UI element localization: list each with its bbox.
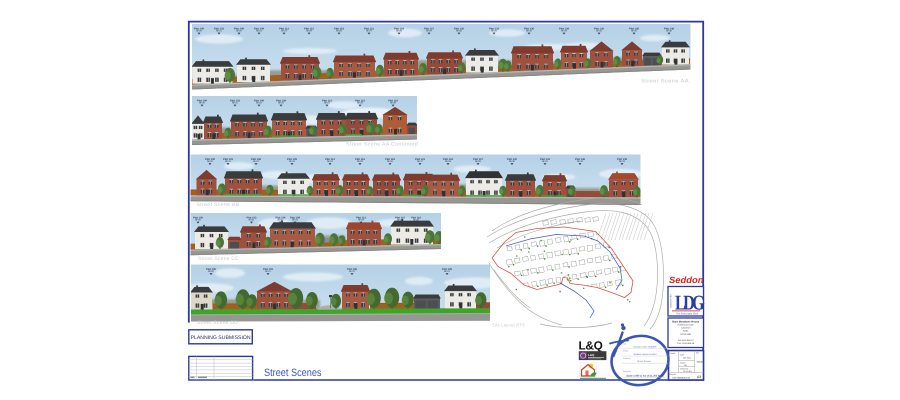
svg-text:BH21: BH21 [225, 160, 231, 163]
svg-text:Seddon: Seddon [669, 275, 704, 285]
svg-text:Calverton: Calverton [681, 327, 691, 330]
svg-text:Site Layout NTS: Site Layout NTS [492, 323, 525, 328]
svg-text:LW: LW [684, 364, 687, 367]
svg-text:BH22: BH22 [278, 219, 284, 222]
svg-text:BH36: BH36 [666, 30, 672, 33]
svg-text:Scale 1:500 @ A3 10.11.301 S: Scale 1:500 @ A3 10.11.301 SS03 [626, 374, 664, 377]
svg-text:BH20: BH20 [196, 30, 202, 33]
svg-text:BH27: BH27 [417, 160, 423, 163]
svg-text:BH20: BH20 [207, 160, 213, 163]
svg-text:L&Q: L&Q [588, 353, 595, 357]
svg-text:BH20: BH20 [195, 219, 201, 222]
svg-text:BH21: BH21 [216, 30, 222, 33]
svg-text:BH26: BH26 [390, 102, 396, 105]
svg-text:Oct 2011: Oct 2011 [683, 357, 692, 360]
svg-text:BH30: BH30 [456, 30, 462, 33]
svg-text:Drawing: Drawing [623, 357, 630, 360]
svg-text:Hollinwood Lane: Hollinwood Lane [678, 324, 695, 327]
svg-text:Rev: Rev [696, 352, 699, 355]
svg-text:BH32: BH32 [577, 160, 583, 163]
svg-text:BH29: BH29 [426, 30, 432, 33]
svg-text:BH33: BH33 [561, 30, 567, 33]
svg-text:BH35: BH35 [631, 30, 637, 33]
svg-text:NG14 6NR: NG14 6NR [680, 333, 691, 336]
svg-text:Street Scenes: Street Scenes [637, 360, 652, 363]
svg-text:Notts: Notts [683, 330, 689, 333]
svg-text:Scale: Scale [670, 352, 676, 355]
svg-text:A3: A3 [697, 375, 701, 379]
svg-text:BH25: BH25 [397, 219, 403, 222]
svg-text:Revision: Revision [623, 370, 631, 373]
svg-text:BH30: BH30 [509, 160, 515, 163]
svg-text:Street Scene AA: Street Scene AA [641, 79, 689, 85]
svg-text:Street Scene AA Continued: Street Scene AA Continued [346, 142, 418, 148]
svg-text:BH21: BH21 [265, 270, 271, 273]
svg-text:The Associates Elect: The Associates Elect [676, 313, 699, 316]
svg-text:PLANNING SUBMISSION: PLANNING SUBMISSION [191, 335, 251, 341]
svg-text:Seddon Homes Limited: Seddon Homes Limited [634, 353, 658, 356]
svg-text:Seddon: Seddon [697, 361, 705, 364]
svg-text:10.11.301: 10.11.301 [683, 370, 693, 373]
svg-text:BH20: BH20 [199, 102, 205, 105]
svg-text:Oxclose Lane, Radcliffe: Oxclose Lane, Radcliffe [633, 345, 657, 348]
svg-text:Street Scenes: Street Scenes [264, 367, 322, 379]
svg-text:BH24: BH24 [358, 219, 364, 222]
svg-text:BH31: BH31 [542, 160, 548, 163]
svg-text:BH25: BH25 [357, 102, 363, 105]
svg-text:BH26: BH26 [336, 30, 342, 33]
svg-text:Client: Client [623, 350, 629, 353]
svg-text:BH22: BH22 [256, 102, 262, 105]
svg-text:BH25: BH25 [306, 30, 312, 33]
svg-text:OXI/TIB/BB/SS 03: OXI/TIB/BB/SS 03 [672, 376, 691, 379]
svg-text:BH20: BH20 [208, 270, 214, 273]
svg-text:Street Scene CC: Street Scene CC [198, 256, 239, 262]
svg-text:BH24: BH24 [281, 30, 287, 33]
svg-text:BH22: BH22 [253, 160, 259, 163]
svg-text:ASSOCIATES: ASSOCIATES [670, 294, 673, 308]
svg-text:BH23: BH23 [256, 30, 262, 33]
svg-text:BH28: BH28 [445, 160, 451, 163]
svg-text:Barn Meadows House: Barn Meadows House [672, 320, 700, 323]
svg-text:BH28: BH28 [396, 30, 402, 33]
svg-text:BH27: BH27 [366, 30, 372, 33]
svg-text:BH23: BH23 [292, 219, 298, 222]
svg-text:L&Q: L&Q [579, 338, 603, 352]
svg-text:BH25: BH25 [357, 160, 363, 163]
svg-text:Fax: 0115 965 58: Fax: 0115 965 58 [677, 342, 695, 345]
svg-text:BH24: BH24 [327, 160, 333, 163]
svg-text:BH21: BH21 [232, 102, 238, 105]
svg-text:BH23: BH23 [444, 270, 450, 273]
svg-text:BH33: BH33 [619, 160, 625, 163]
svg-text:BH21: BH21 [249, 219, 255, 222]
svg-text:BH22: BH22 [349, 270, 355, 273]
svg-text:BH34: BH34 [596, 30, 602, 33]
svg-text:BH23: BH23 [289, 160, 295, 163]
svg-text:BH22: BH22 [236, 30, 242, 33]
svg-text:BH32: BH32 [526, 30, 532, 33]
svg-text:Tel: 0115 965 57: Tel: 0115 965 57 [678, 339, 695, 342]
svg-text:BH23: BH23 [278, 102, 284, 105]
svg-text:Dwg No: Dwg No [670, 373, 677, 376]
svg-text:BH26: BH26 [387, 160, 393, 163]
svg-text:BH26: BH26 [413, 219, 419, 222]
svg-text:Street Scene DD: Street Scene DD [197, 320, 238, 326]
svg-text:BH24: BH24 [324, 102, 330, 105]
svg-text:Street Scene BB: Street Scene BB [197, 202, 240, 208]
svg-text:BH31: BH31 [491, 30, 497, 33]
svg-text:BH29: BH29 [475, 160, 481, 163]
